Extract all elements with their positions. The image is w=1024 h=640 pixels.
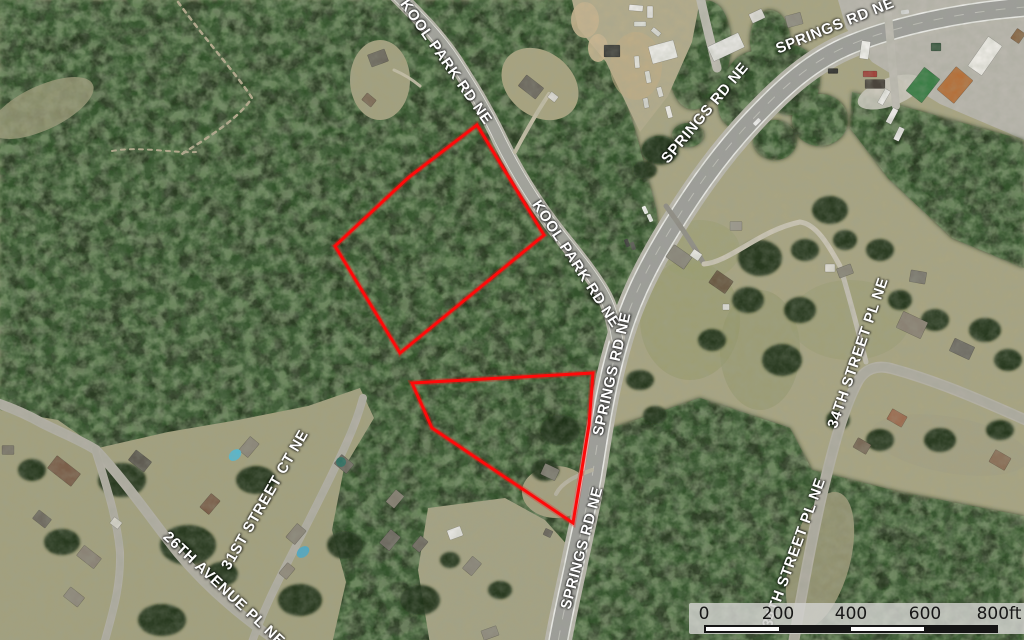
aerial-map: KOOL PARK RD NE KOOL PARK RD NE SPRINGS … — [0, 0, 1024, 640]
scale-segment — [851, 627, 924, 631]
scale-segment — [779, 627, 852, 631]
scale-segment — [924, 627, 997, 631]
scale-bar-segments — [704, 625, 998, 633]
scale-tick-600: 600 — [909, 606, 941, 623]
scale-tick-800ft: 800ft — [977, 606, 1022, 623]
satellite-imagery[interactable] — [0, 0, 1024, 640]
photo-grain — [0, 0, 1024, 640]
scale-tick-200: 200 — [762, 606, 794, 623]
scale-bar: 0 200 400 600 800ft — [689, 603, 1024, 634]
scale-tick-400: 400 — [835, 606, 867, 623]
scale-segment — [706, 627, 779, 631]
scale-tick-0: 0 — [699, 606, 710, 623]
